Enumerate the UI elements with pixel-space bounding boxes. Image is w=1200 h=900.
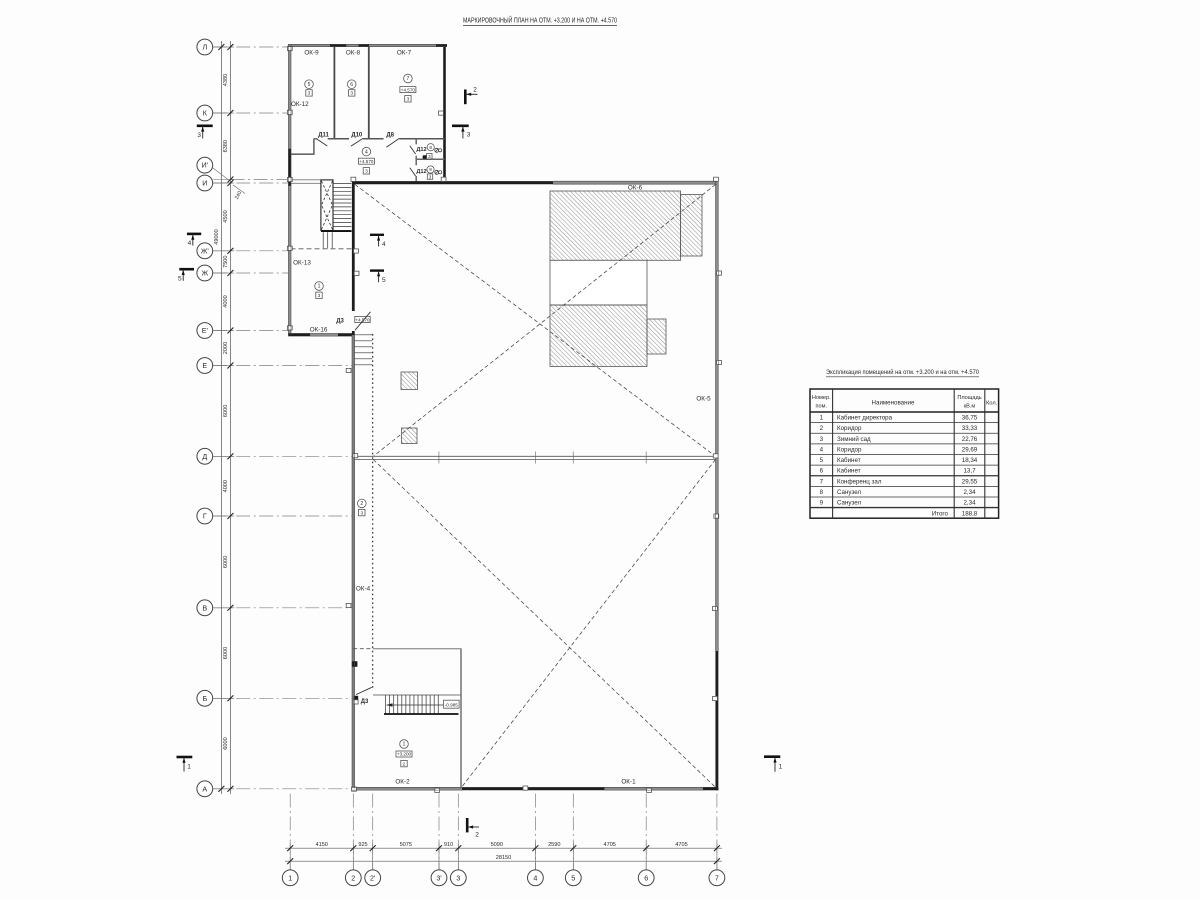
svg-text:2: 2 [475, 832, 479, 839]
svg-text:ОК-13: ОК-13 [293, 260, 311, 267]
svg-text:Кабинет: Кабинет [837, 468, 861, 475]
svg-text:2: 2 [360, 501, 363, 507]
svg-text:Кол.: Кол. [986, 401, 998, 407]
svg-text:5075: 5075 [400, 842, 412, 848]
svg-text:Л: Л [202, 43, 207, 52]
svg-text:3: 3 [467, 132, 471, 139]
svg-text:ОК-8: ОК-8 [346, 50, 361, 57]
svg-text:5: 5 [308, 82, 311, 88]
svg-text:925: 925 [358, 842, 367, 848]
svg-text:2': 2' [370, 873, 376, 882]
svg-text:4: 4 [188, 240, 192, 247]
svg-text:9: 9 [820, 500, 824, 507]
svg-text:1: 1 [187, 764, 191, 771]
svg-text:ОК-1: ОК-1 [621, 779, 636, 786]
svg-text:Кабинет: Кабинет [837, 457, 861, 464]
svg-text:Экспликация помещений на отм.: Экспликация помещений на отм. +3.200 и н… [826, 368, 979, 376]
svg-text:Д11: Д11 [318, 132, 329, 138]
svg-text:+3.200: +3.200 [397, 752, 412, 757]
svg-text:Е': Е' [202, 326, 209, 335]
svg-text:6000: 6000 [223, 405, 229, 417]
svg-text:7: 7 [715, 873, 719, 882]
svg-text:910: 910 [444, 842, 453, 848]
svg-text:2,34: 2,34 [963, 489, 976, 496]
svg-text:5: 5 [382, 277, 386, 284]
svg-text:1: 1 [820, 415, 824, 422]
svg-text:188,8: 188,8 [962, 510, 978, 517]
svg-text:29,55: 29,55 [962, 478, 978, 485]
svg-text:Ж: Ж [201, 269, 208, 278]
svg-text:И: И [202, 179, 207, 188]
svg-text:1: 1 [288, 873, 292, 882]
svg-text:ОК-9: ОК-9 [304, 50, 319, 57]
svg-text:ОК-7: ОК-7 [397, 50, 412, 57]
svg-text:2: 2 [473, 87, 477, 94]
svg-text:2: 2 [403, 761, 406, 767]
svg-text:1: 1 [779, 764, 783, 771]
svg-text:6380: 6380 [223, 140, 229, 152]
svg-text:4380: 4380 [223, 74, 229, 86]
svg-text:2,34: 2,34 [963, 500, 976, 507]
svg-text:3: 3 [350, 91, 353, 97]
svg-text:Д10: Д10 [351, 132, 363, 138]
svg-text:Номер.: Номер. [812, 395, 831, 401]
svg-text:Площадь: Площадь [957, 395, 981, 401]
svg-text:Д3: Д3 [361, 699, 369, 705]
svg-text:7: 7 [820, 478, 824, 485]
svg-text:-0.985: -0.985 [445, 702, 458, 707]
svg-text:+4.570: +4.570 [359, 159, 374, 164]
svg-text:2: 2 [820, 425, 824, 432]
svg-text:Д3: Д3 [336, 319, 344, 325]
svg-text:И': И' [202, 161, 209, 170]
svg-text:13,7: 13,7 [963, 468, 976, 475]
svg-text:49000: 49000 [214, 229, 220, 245]
svg-text:Наименование: Наименование [872, 400, 915, 407]
svg-text:кВ.м: кВ.м [964, 404, 976, 410]
svg-text:МАРКИРОВОЧНЫЙ ПЛАН НА ОТМ. +3.: МАРКИРОВОЧНЫЙ ПЛАН НА ОТМ. +3.200 И НА О… [463, 16, 617, 25]
svg-text:Зимний сад: Зимний сад [837, 436, 871, 443]
svg-text:4150: 4150 [315, 842, 327, 848]
svg-text:3: 3 [360, 510, 363, 516]
svg-text:6: 6 [644, 873, 648, 882]
svg-text:Д: Д [202, 452, 207, 461]
svg-text:2590: 2590 [548, 842, 560, 848]
svg-text:3: 3 [308, 91, 311, 97]
svg-text:Б: Б [202, 694, 207, 703]
svg-text:Конференц зал: Конференц зал [837, 478, 882, 485]
svg-text:8: 8 [820, 489, 824, 496]
svg-text:6000: 6000 [223, 556, 229, 568]
svg-text:8: 8 [429, 145, 432, 150]
svg-text:ОК-12: ОК-12 [291, 101, 309, 108]
svg-text:7500: 7500 [223, 255, 229, 267]
svg-text:Г: Г [203, 512, 207, 521]
svg-text:4: 4 [533, 873, 537, 882]
svg-text:28150: 28150 [496, 855, 512, 861]
svg-text:3: 3 [197, 132, 201, 139]
svg-text:А: А [202, 784, 207, 793]
svg-text:В: В [202, 603, 207, 612]
svg-text:5: 5 [820, 457, 824, 464]
svg-text:6: 6 [820, 468, 824, 475]
svg-text:Коридор: Коридор [837, 446, 862, 453]
svg-text:33,33: 33,33 [962, 425, 978, 432]
svg-text:Кабинет директора: Кабинет директора [837, 415, 893, 422]
svg-text:Санузел: Санузел [837, 489, 861, 496]
svg-text:2000: 2000 [223, 342, 229, 354]
svg-text:Ж': Ж' [201, 246, 210, 255]
svg-text:4705: 4705 [603, 842, 615, 848]
svg-text:2: 2 [351, 873, 355, 882]
svg-text:3: 3 [365, 169, 368, 175]
svg-text:22,76: 22,76 [962, 436, 978, 443]
svg-text:Итого: Итого [932, 510, 949, 517]
svg-text:1: 1 [403, 742, 406, 748]
svg-text:пом.: пом. [816, 404, 828, 410]
svg-text:7: 7 [407, 76, 410, 82]
svg-text:ОК-4: ОК-4 [356, 586, 371, 593]
svg-text:+4.570: +4.570 [401, 87, 416, 92]
svg-text:4705: 4705 [675, 842, 687, 848]
svg-text:6: 6 [350, 82, 353, 88]
svg-text:ОК-5: ОК-5 [696, 396, 711, 403]
svg-text:29,69: 29,69 [962, 446, 978, 453]
svg-text:3: 3 [820, 436, 824, 443]
svg-text:Е: Е [202, 361, 207, 370]
svg-text:Д8: Д8 [386, 132, 394, 138]
svg-text:3': 3' [436, 873, 442, 882]
svg-text:6000: 6000 [223, 647, 229, 659]
svg-text:4000: 4000 [223, 295, 229, 307]
svg-text:5: 5 [178, 276, 182, 283]
svg-text:ОК-6: ОК-6 [628, 184, 643, 191]
svg-text:Санузел: Санузел [837, 500, 861, 507]
svg-text:5: 5 [571, 873, 575, 882]
svg-text:4: 4 [382, 241, 386, 248]
svg-text:Коридор: Коридор [837, 425, 862, 432]
svg-text:1: 1 [318, 284, 321, 290]
svg-text:5090: 5090 [491, 842, 503, 848]
svg-text:18,34: 18,34 [962, 457, 978, 464]
svg-text:4500: 4500 [223, 210, 229, 222]
svg-text:4: 4 [820, 446, 824, 453]
svg-text:3: 3 [456, 873, 460, 882]
svg-text:ОК-2: ОК-2 [395, 779, 410, 786]
svg-text:4000: 4000 [223, 480, 229, 492]
svg-text:3: 3 [407, 97, 410, 103]
svg-text:6000: 6000 [223, 737, 229, 749]
svg-text:Д12: Д12 [416, 147, 426, 153]
svg-text:9: 9 [429, 167, 432, 172]
svg-text:3: 3 [318, 293, 321, 299]
svg-text:Д12: Д12 [416, 169, 426, 175]
svg-text:4: 4 [365, 149, 368, 155]
svg-text:ОК-16: ОК-16 [310, 327, 328, 334]
svg-text:36,75: 36,75 [962, 415, 978, 422]
